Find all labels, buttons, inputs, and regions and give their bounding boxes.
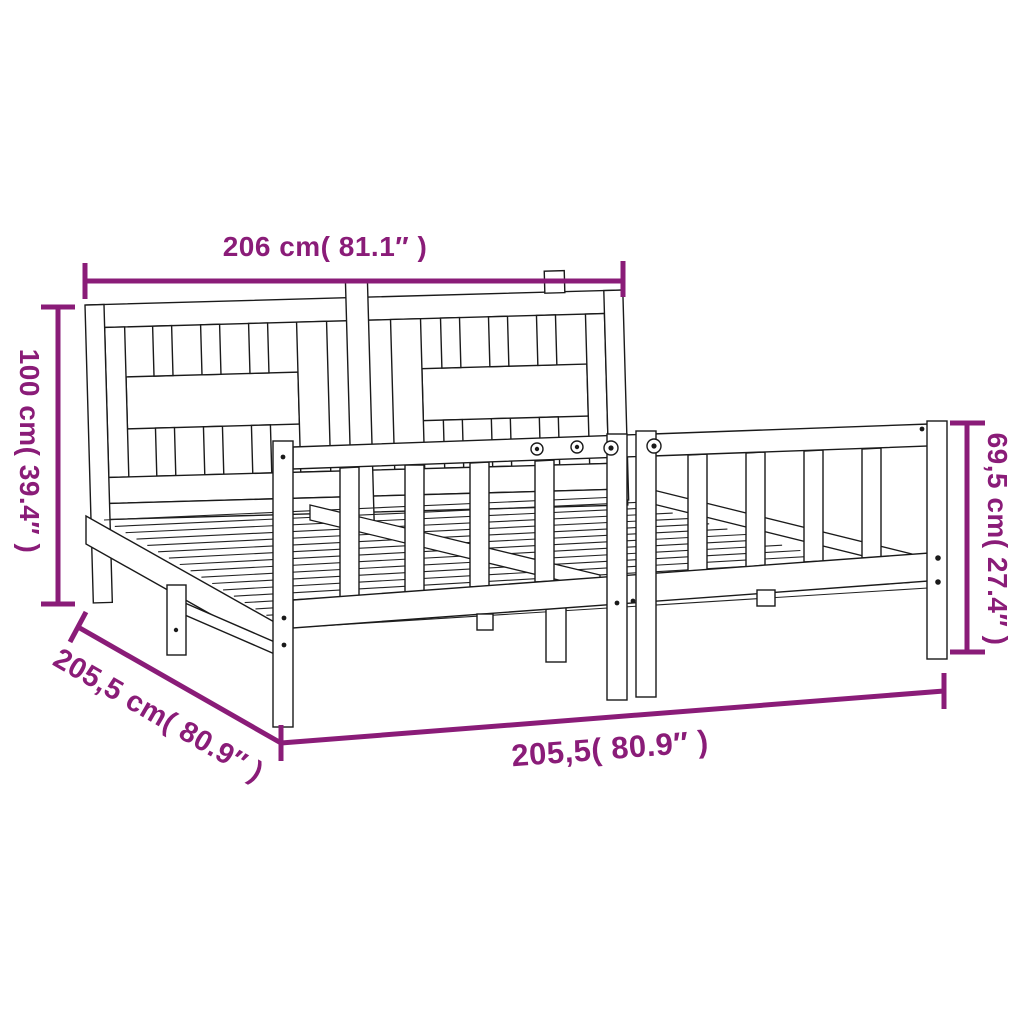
dimension-label-headboard-height: 100 cm( 39.4″ ): [13, 349, 45, 554]
bed-frame-drawing: [0, 0, 1024, 1024]
footboard-right-post: [927, 421, 947, 659]
footboard-mid-post-2: [636, 431, 656, 697]
footboard-mid-post-1: [607, 434, 627, 700]
dimension-line-footboard-height: [950, 423, 985, 652]
footboard-left-post: [273, 441, 293, 727]
product-dimension-diagram: 206 cm( 81.1″ ) 100 cm( 39.4″ ) 69,5 cm(…: [0, 0, 1024, 1024]
dimension-line-headboard-height: [41, 307, 75, 604]
middle-left-leg: [167, 585, 186, 655]
dimension-label-width: 206 cm( 81.1″ ): [223, 231, 428, 263]
dimension-label-footboard-height: 69,5 cm( 27.4″ ): [981, 433, 1013, 646]
